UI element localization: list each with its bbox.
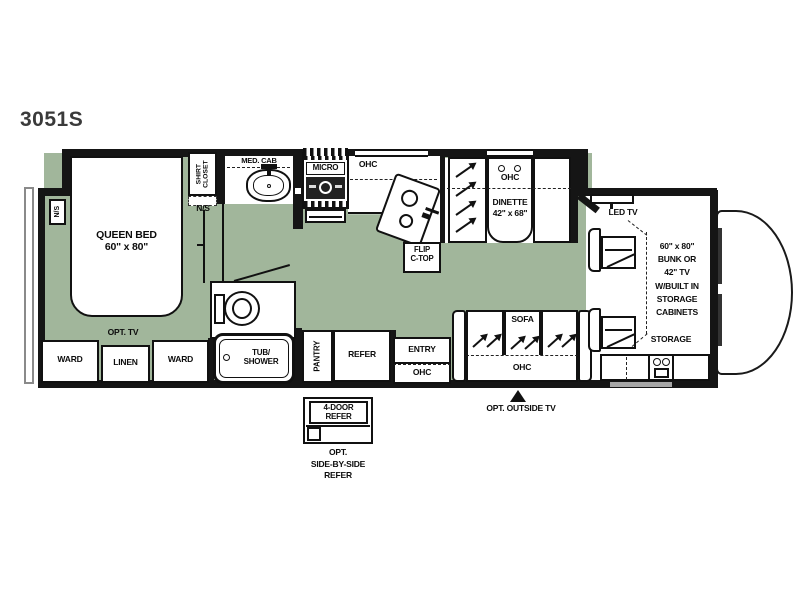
sofa-ohc: OHC xyxy=(466,355,578,382)
dinette-bench-right xyxy=(533,157,571,243)
refrigerator: REFER xyxy=(333,330,391,382)
cab-appliance xyxy=(648,356,674,381)
cab-seat-back xyxy=(588,308,601,352)
counter-edge-h xyxy=(348,212,385,214)
front-cap xyxy=(716,210,793,375)
dinette-ohc-line xyxy=(447,188,571,189)
cab-cabinet-row xyxy=(600,354,710,381)
micro-label-band: MICRO xyxy=(306,162,345,175)
bedroom-door-handle xyxy=(197,244,204,246)
seatbelt-arrow xyxy=(455,182,475,197)
cab-seat xyxy=(601,236,636,269)
dinette-label: DINETTE xyxy=(489,198,531,208)
side-by-side-refer-label: OPT. SIDE-BY-SIDE REFER xyxy=(298,447,378,482)
wardrobe-right: WARD xyxy=(152,340,209,383)
bath-faucet-stem xyxy=(267,169,271,175)
entry-step xyxy=(610,382,672,387)
storage-label: STORAGE xyxy=(642,335,700,345)
cabinet-divider xyxy=(626,357,627,380)
led-tv-label: LED TV xyxy=(598,208,648,218)
tub-drain xyxy=(223,354,230,361)
seatbelt-arrow xyxy=(547,334,562,348)
flip-ctop-callout: FLIP C-TOP xyxy=(403,242,441,273)
tub-shower-label: TUB/ SHOWER xyxy=(232,349,290,367)
tub-shower: TUB/ SHOWER xyxy=(213,333,295,384)
entry-ohc: OHC xyxy=(393,364,451,384)
range-top xyxy=(306,177,345,199)
sofa-cushion xyxy=(466,310,504,357)
seatbelt-arrow xyxy=(455,163,475,178)
cab-seat xyxy=(601,316,636,349)
queen-bed: QUEEN BED 60" x 80" xyxy=(70,156,183,317)
wall-bath-left xyxy=(217,151,225,204)
bath-sink-drain xyxy=(267,184,271,188)
sofa-label: SOFA xyxy=(506,315,539,325)
opt-tv-label: OPT. TV xyxy=(92,328,154,338)
nightstand-left: N/S xyxy=(49,199,66,225)
med-cab-line xyxy=(227,167,290,168)
dinette-window xyxy=(487,149,533,157)
seatbelt-arrow xyxy=(510,336,525,350)
opt-outside-tv-label: OPT. OUTSIDE TV xyxy=(466,404,576,414)
linen-cabinet: LINEN xyxy=(101,345,150,383)
sofa-arm-left xyxy=(452,310,466,382)
bedroom-door xyxy=(203,210,205,283)
sink-faucet-base xyxy=(421,212,430,219)
cab-seat-back xyxy=(588,228,601,272)
entry-door: ENTRY xyxy=(393,337,451,364)
kitchen-window xyxy=(355,149,428,157)
cup-holder xyxy=(498,165,505,172)
sink-bowl-small xyxy=(397,212,415,230)
seatbelt-arrow xyxy=(455,218,475,233)
seatbelt-arrow xyxy=(455,201,475,216)
wall-bath-thin xyxy=(222,200,224,285)
rv-floorplan: 3051S QUEEN BED 60" x 80" N/S SHIRT CLOS… xyxy=(0,0,800,600)
sink-bowl-large xyxy=(399,187,421,209)
med-cab-label: MED. CAB xyxy=(225,157,293,165)
wall-top-connector xyxy=(578,149,588,196)
sofa-cushion xyxy=(541,310,578,357)
queen-bed-label: QUEEN BED xyxy=(72,230,181,242)
shirt-closet: SHIRT CLOSET xyxy=(188,152,217,196)
bath-door-hinge xyxy=(295,188,301,194)
bunk-text: 60" x 80" BUNK OR 42" TV W/BUILT IN STOR… xyxy=(638,240,716,319)
kitchen-drawer xyxy=(305,209,346,223)
range-vent xyxy=(303,148,348,156)
outside-tv-marker xyxy=(510,390,526,402)
dinette-size-label: 42" x 68" xyxy=(489,209,531,219)
bath-vanity-room: MED. CAB xyxy=(225,156,293,204)
dinette-ohc-label: OHC xyxy=(489,173,531,183)
dinette-bench-left xyxy=(448,157,487,243)
four-door-refer: 4-DOOR REFER xyxy=(309,401,368,424)
floorplan-title: 3051S xyxy=(20,108,130,132)
refer-small-door xyxy=(307,427,321,441)
seatbelt-arrow xyxy=(472,334,487,348)
cup-holder xyxy=(514,165,521,172)
led-tv xyxy=(590,194,634,204)
range-burner xyxy=(319,181,332,194)
pantry: PANTRY xyxy=(302,330,333,383)
microwave-range: MICRO xyxy=(302,152,349,209)
wall-dinette-slide-right xyxy=(571,151,578,243)
queen-bed-size: 60" x 80" xyxy=(72,242,181,254)
dinette-table: OHC DINETTE 42" x 68" xyxy=(487,157,533,243)
toilet-bowl-inner xyxy=(232,298,252,319)
wardrobe-left: WARD xyxy=(41,340,99,383)
range-base xyxy=(304,201,347,207)
sofa-cushion: SOFA xyxy=(504,310,541,357)
kitchen-ohc-label: OHC xyxy=(352,160,384,170)
rear-slide-outline xyxy=(24,187,34,384)
